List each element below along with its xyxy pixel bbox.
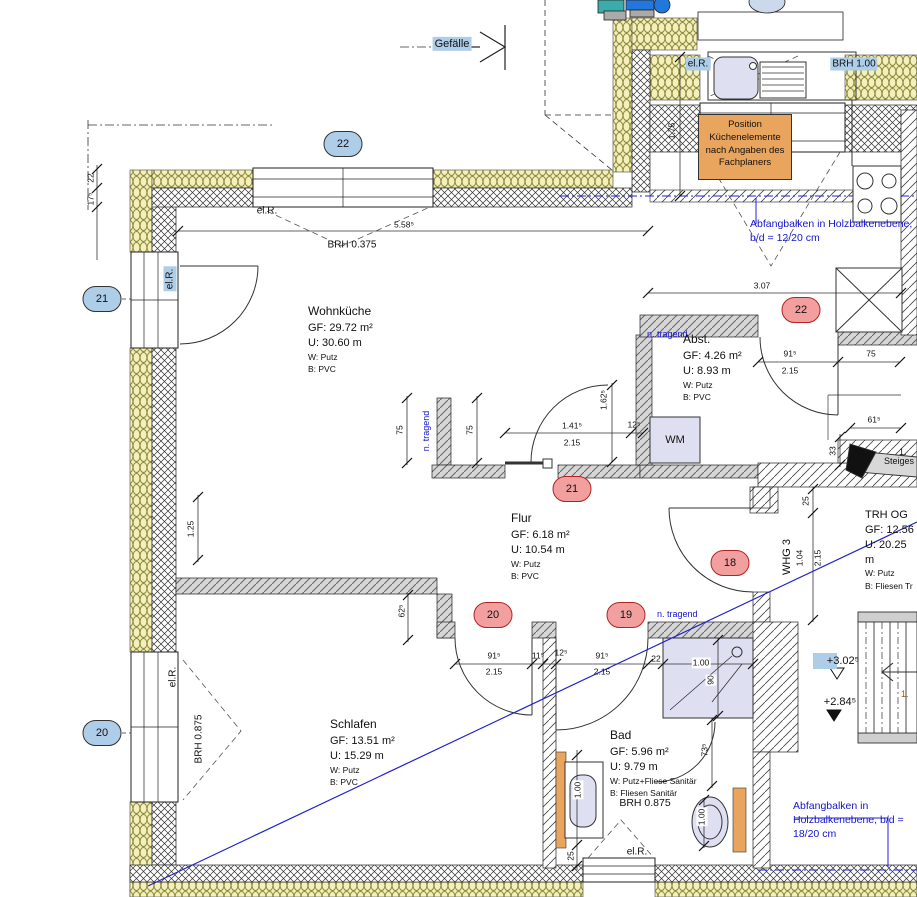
- room-b: B: PVC: [330, 776, 395, 788]
- dim-label: 1.41⁵: [562, 420, 582, 431]
- dim-label: 22: [85, 173, 96, 182]
- dim-label: 25: [800, 496, 811, 505]
- dim-label: 1,75: [666, 123, 677, 140]
- dim-label: 12⁵: [628, 419, 641, 430]
- dim-label: 75: [394, 425, 405, 434]
- washing-machine-label: WM: [665, 433, 685, 447]
- dim-label: 90: [705, 674, 716, 685]
- room-u: U: 10.54 m: [511, 543, 570, 558]
- dim-label: 62⁵: [396, 605, 407, 618]
- dim-label: 91⁵: [596, 650, 609, 661]
- dim-label: 2.15: [782, 365, 799, 376]
- door-bubble-19: 19: [607, 602, 646, 628]
- dim-label: 1.04: [794, 550, 805, 567]
- door-bubble-20: 20: [474, 602, 513, 628]
- brh-100-label: BRH 1.00: [830, 58, 877, 71]
- room-w: W: Putz: [865, 567, 917, 579]
- elr-label-top-window: el.R.: [257, 205, 278, 218]
- n-tragend-label-bad: n. tragend: [657, 609, 698, 621]
- room-gf: GF: 29.72 m²: [308, 321, 373, 336]
- slope-arrow-icon: [468, 25, 505, 70]
- brh-0875-label-left: BRH 0.875: [193, 715, 206, 764]
- room-u: U: 9.79 m: [610, 760, 697, 775]
- room-label-trh: TRH OG GF: 12.56 U: 20.25 m W: Putz B: F…: [865, 508, 917, 592]
- room-w: W: Putz: [308, 351, 373, 363]
- whg3-label: WHG 3: [780, 539, 794, 575]
- elevation-upper-label: +3.02⁵: [827, 654, 859, 668]
- axis-bubble-20: 20: [83, 720, 122, 746]
- dim-label: 11⁵: [532, 650, 544, 661]
- elevation-lower-label: +2.84⁵: [824, 695, 856, 709]
- room-label-abst: Abst. GF: 4.26 m² U: 8.93 m W: Putz B: P…: [683, 332, 742, 403]
- room-gf: GF: 4.26 m²: [683, 349, 742, 364]
- room-name: Abst.: [683, 332, 742, 346]
- dim-label: 75: [464, 425, 475, 434]
- dim-label: 33: [827, 446, 838, 455]
- room-w: W: Putz: [330, 764, 395, 776]
- room-u: U: 20.25 m: [865, 538, 917, 568]
- room-name: Bad: [610, 728, 697, 742]
- room-name: Wohnküche: [308, 304, 373, 318]
- room-w: W: Putz: [683, 379, 742, 391]
- dim-label: 73⁵: [699, 744, 710, 757]
- elr-label-bad: el.R.: [627, 846, 648, 859]
- room-label-wohnkueche: Wohnküche GF: 29.72 m² U: 30.60 m W: Put…: [308, 304, 373, 375]
- cut-dim-label: 1.: [899, 447, 907, 459]
- room-gf: GF: 5.96 m²: [610, 745, 697, 760]
- elr-label-window-21: el.R.: [164, 267, 177, 292]
- room-gf: GF: 12.56: [865, 523, 917, 538]
- door-bubble-22: 22: [782, 297, 821, 323]
- dim-label: 1.25: [185, 521, 196, 538]
- dim-label: 1.62⁵: [598, 390, 609, 410]
- brh-0375-label: BRH 0.375: [328, 239, 377, 252]
- room-label-schlafen: Schlafen GF: 13.51 m² U: 15.29 m W: Putz…: [330, 717, 395, 788]
- axis-bubble-21: 21: [83, 286, 122, 312]
- elr-label-window-20: el.R.: [167, 667, 180, 688]
- room-gf: GF: 6.18 m²: [511, 528, 570, 543]
- room-w: W: Putz+Fliese Sanitär: [610, 775, 697, 787]
- dim-label: 2.15: [486, 666, 503, 677]
- dim-label: 3.07: [754, 280, 771, 291]
- dim-label: 91⁵: [488, 650, 501, 661]
- room-u: U: 15.29 m: [330, 749, 395, 764]
- dim-label: 5.58⁵: [394, 219, 414, 230]
- kitchen-position-note: Position Küchenelemente nach Angaben des…: [698, 114, 792, 180]
- room-label-bad: Bad GF: 5.96 m² U: 9.79 m W: Putz+Fliese…: [610, 728, 697, 799]
- dim-label: 22: [651, 653, 660, 664]
- abfangbalken-note-bottom: Abfangbalken in Holzbalkenebene, b/d = 1…: [793, 799, 917, 842]
- n-tragend-label-flur: n. tragend: [421, 411, 433, 452]
- dim-label: 2.15: [564, 437, 581, 448]
- floorplan-page: Gefälle Position Küchenelemente nach Ang…: [0, 0, 917, 897]
- room-u: U: 30.60 m: [308, 336, 373, 351]
- dim-label: 2.15: [812, 550, 823, 567]
- room-b: B: Fliesen Sanitär: [610, 787, 697, 799]
- room-name: TRH OG: [865, 508, 917, 523]
- room-name: Schlafen: [330, 717, 395, 731]
- dim-label: 1.00: [696, 808, 707, 827]
- room-u: U: 8.93 m: [683, 364, 742, 379]
- dim-label: 17⁵: [85, 193, 96, 206]
- dim-label: 61⁵: [868, 414, 881, 425]
- room-label-flur: Flur GF: 6.18 m² U: 10.54 m W: Putz B: P…: [511, 511, 570, 582]
- dim-label: 25: [565, 851, 576, 860]
- room-b: B: PVC: [511, 570, 570, 582]
- cut-dim-label-stairs: 1.: [901, 689, 909, 701]
- dim-label: 75: [866, 348, 875, 359]
- room-b: B: PVC: [683, 391, 742, 403]
- axis-bubble-22: 22: [324, 131, 363, 157]
- dim-label: 91⁵: [784, 348, 797, 359]
- room-w: W: Putz: [511, 558, 570, 570]
- dim-label: 1.00: [692, 657, 711, 668]
- n-tragend-label-abst: n. tragend: [647, 329, 688, 341]
- elr-label-kitchen: el.R.: [686, 58, 711, 71]
- room-b: B: Fliesen Tr: [865, 580, 917, 592]
- room-b: B: PVC: [308, 363, 373, 375]
- room-name: Flur: [511, 511, 570, 525]
- gefaelle-label: Gefälle: [433, 37, 472, 51]
- dim-label: 1.00: [572, 781, 583, 800]
- abfangbalken-note-top: Abfangbalken in Holzbalkenebene, b/d = 1…: [750, 217, 917, 245]
- dim-label: 2.15: [594, 666, 611, 677]
- dim-label: 12⁵: [555, 647, 568, 658]
- door-bubble-21: 21: [553, 476, 592, 502]
- room-gf: GF: 13.51 m²: [330, 734, 395, 749]
- door-bubble-18: 18: [711, 550, 750, 576]
